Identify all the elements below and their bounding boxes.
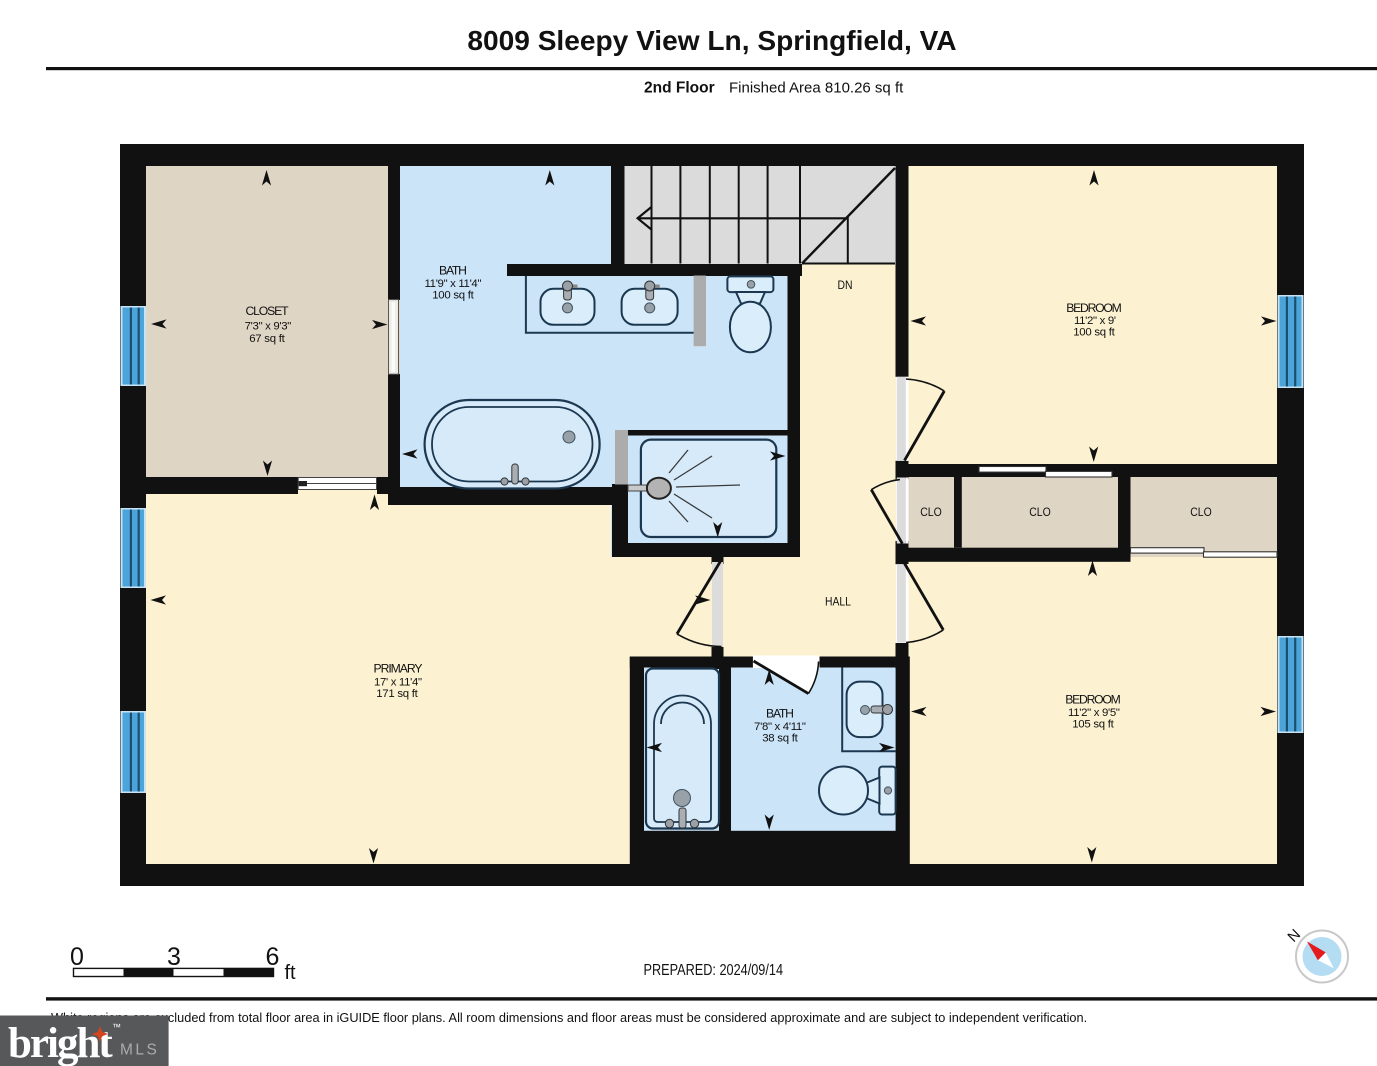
svg-text:CLOSET: CLOSET bbox=[245, 304, 289, 318]
svg-text:CLO: CLO bbox=[1029, 505, 1051, 519]
svg-text:MLS: MLS bbox=[120, 1042, 159, 1059]
svg-text:11'2" x 9': 11'2" x 9' bbox=[1074, 315, 1116, 327]
svg-text:Finished Area 810.26 sq ft: Finished Area 810.26 sq ft bbox=[729, 80, 904, 97]
svg-text:100 sq ft: 100 sq ft bbox=[432, 290, 474, 302]
svg-text:BATH: BATH bbox=[439, 264, 467, 278]
svg-text:2nd Floor: 2nd Floor bbox=[644, 80, 715, 97]
svg-text:6: 6 bbox=[266, 943, 280, 971]
svg-text:11'9" x 11'4": 11'9" x 11'4" bbox=[425, 278, 482, 290]
svg-text:CLO: CLO bbox=[920, 505, 942, 519]
svg-text:3: 3 bbox=[167, 943, 181, 971]
svg-text:BATH: BATH bbox=[766, 707, 794, 721]
svg-text:11'2" x 9'5": 11'2" x 9'5" bbox=[1068, 707, 1120, 719]
svg-text:™: ™ bbox=[112, 1022, 121, 1032]
svg-text:100 sq ft: 100 sq ft bbox=[1073, 326, 1115, 338]
svg-text:171 sq ft: 171 sq ft bbox=[376, 688, 418, 700]
svg-text:7'8" x 4'11": 7'8" x 4'11" bbox=[754, 721, 806, 733]
svg-text:PREPARED: 2024/09/14: PREPARED: 2024/09/14 bbox=[644, 962, 784, 979]
svg-text:7'3" x 9'3": 7'3" x 9'3" bbox=[245, 320, 292, 332]
svg-text:17' x 11'4": 17' x 11'4" bbox=[374, 677, 422, 689]
svg-text:White regions are excluded fro: White regions are excluded from total fl… bbox=[51, 1010, 1087, 1025]
svg-text:bright: bright bbox=[8, 1020, 113, 1066]
svg-text:0: 0 bbox=[70, 943, 84, 971]
svg-text:BEDROOM: BEDROOM bbox=[1065, 693, 1121, 707]
svg-text:105 sq ft: 105 sq ft bbox=[1072, 718, 1114, 730]
svg-text:BEDROOM: BEDROOM bbox=[1066, 301, 1122, 315]
svg-text:DN: DN bbox=[838, 278, 853, 292]
svg-text:67 sq ft: 67 sq ft bbox=[249, 333, 285, 345]
svg-text:ft: ft bbox=[285, 962, 297, 984]
svg-text:CLO: CLO bbox=[1190, 505, 1212, 519]
svg-text:8009 Sleepy View Ln, Springfie: 8009 Sleepy View Ln, Springfield, VA bbox=[467, 25, 956, 56]
svg-text:38 sq ft: 38 sq ft bbox=[762, 733, 798, 745]
svg-text:PRIMARY: PRIMARY bbox=[374, 662, 423, 676]
svg-text:HALL: HALL bbox=[825, 594, 851, 608]
